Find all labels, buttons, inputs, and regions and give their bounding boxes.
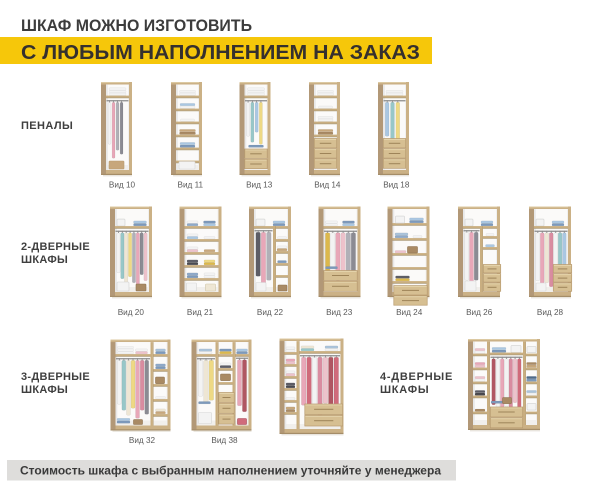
svg-text:Вид 22: Вид 22 (257, 308, 284, 317)
svg-text:ШКАФЫ: ШКАФЫ (21, 254, 68, 266)
svg-text:3-ДВЕРНЫЕ: 3-ДВЕРНЫЕ (21, 371, 90, 383)
svg-text:ШКАФЫ: ШКАФЫ (21, 384, 68, 396)
svg-text:Вид 18: Вид 18 (383, 181, 410, 190)
svg-text:Вид 24: Вид 24 (396, 308, 423, 317)
svg-text:Стоимость шкафа с выбранным на: Стоимость шкафа с выбранным наполнением … (20, 466, 442, 478)
svg-text:ШКАФЫ: ШКАФЫ (380, 384, 429, 396)
svg-text:Вид 32: Вид 32 (129, 436, 156, 445)
svg-text:2-ДВЕРНЫЕ: 2-ДВЕРНЫЕ (21, 241, 90, 253)
svg-text:ПЕНАЛЫ: ПЕНАЛЫ (21, 120, 73, 132)
svg-text:Вид 26: Вид 26 (466, 308, 493, 317)
svg-text:Вид 23: Вид 23 (326, 308, 353, 317)
svg-text:Вид 11: Вид 11 (178, 181, 204, 190)
svg-text:Вид 13: Вид 13 (246, 181, 273, 190)
svg-text:4-ДВЕРНЫЕ: 4-ДВЕРНЫЕ (380, 371, 453, 383)
svg-text:ШКАФ МОЖНО ИЗГОТОВИТЬ: ШКАФ МОЖНО ИЗГОТОВИТЬ (21, 17, 252, 35)
svg-text:Вид 10: Вид 10 (109, 181, 136, 190)
svg-text:Вид 20: Вид 20 (118, 308, 145, 317)
svg-text:Вид 21: Вид 21 (187, 308, 214, 317)
svg-text:Вид 38: Вид 38 (211, 436, 238, 445)
svg-text:С ЛЮБЫМ НАПОЛНЕНИЕМ НА ЗАКАЗ: С ЛЮБЫМ НАПОЛНЕНИЕМ НА ЗАКАЗ (21, 41, 420, 64)
svg-text:Вид 14: Вид 14 (314, 181, 341, 190)
svg-text:Вид 28: Вид 28 (537, 308, 564, 317)
